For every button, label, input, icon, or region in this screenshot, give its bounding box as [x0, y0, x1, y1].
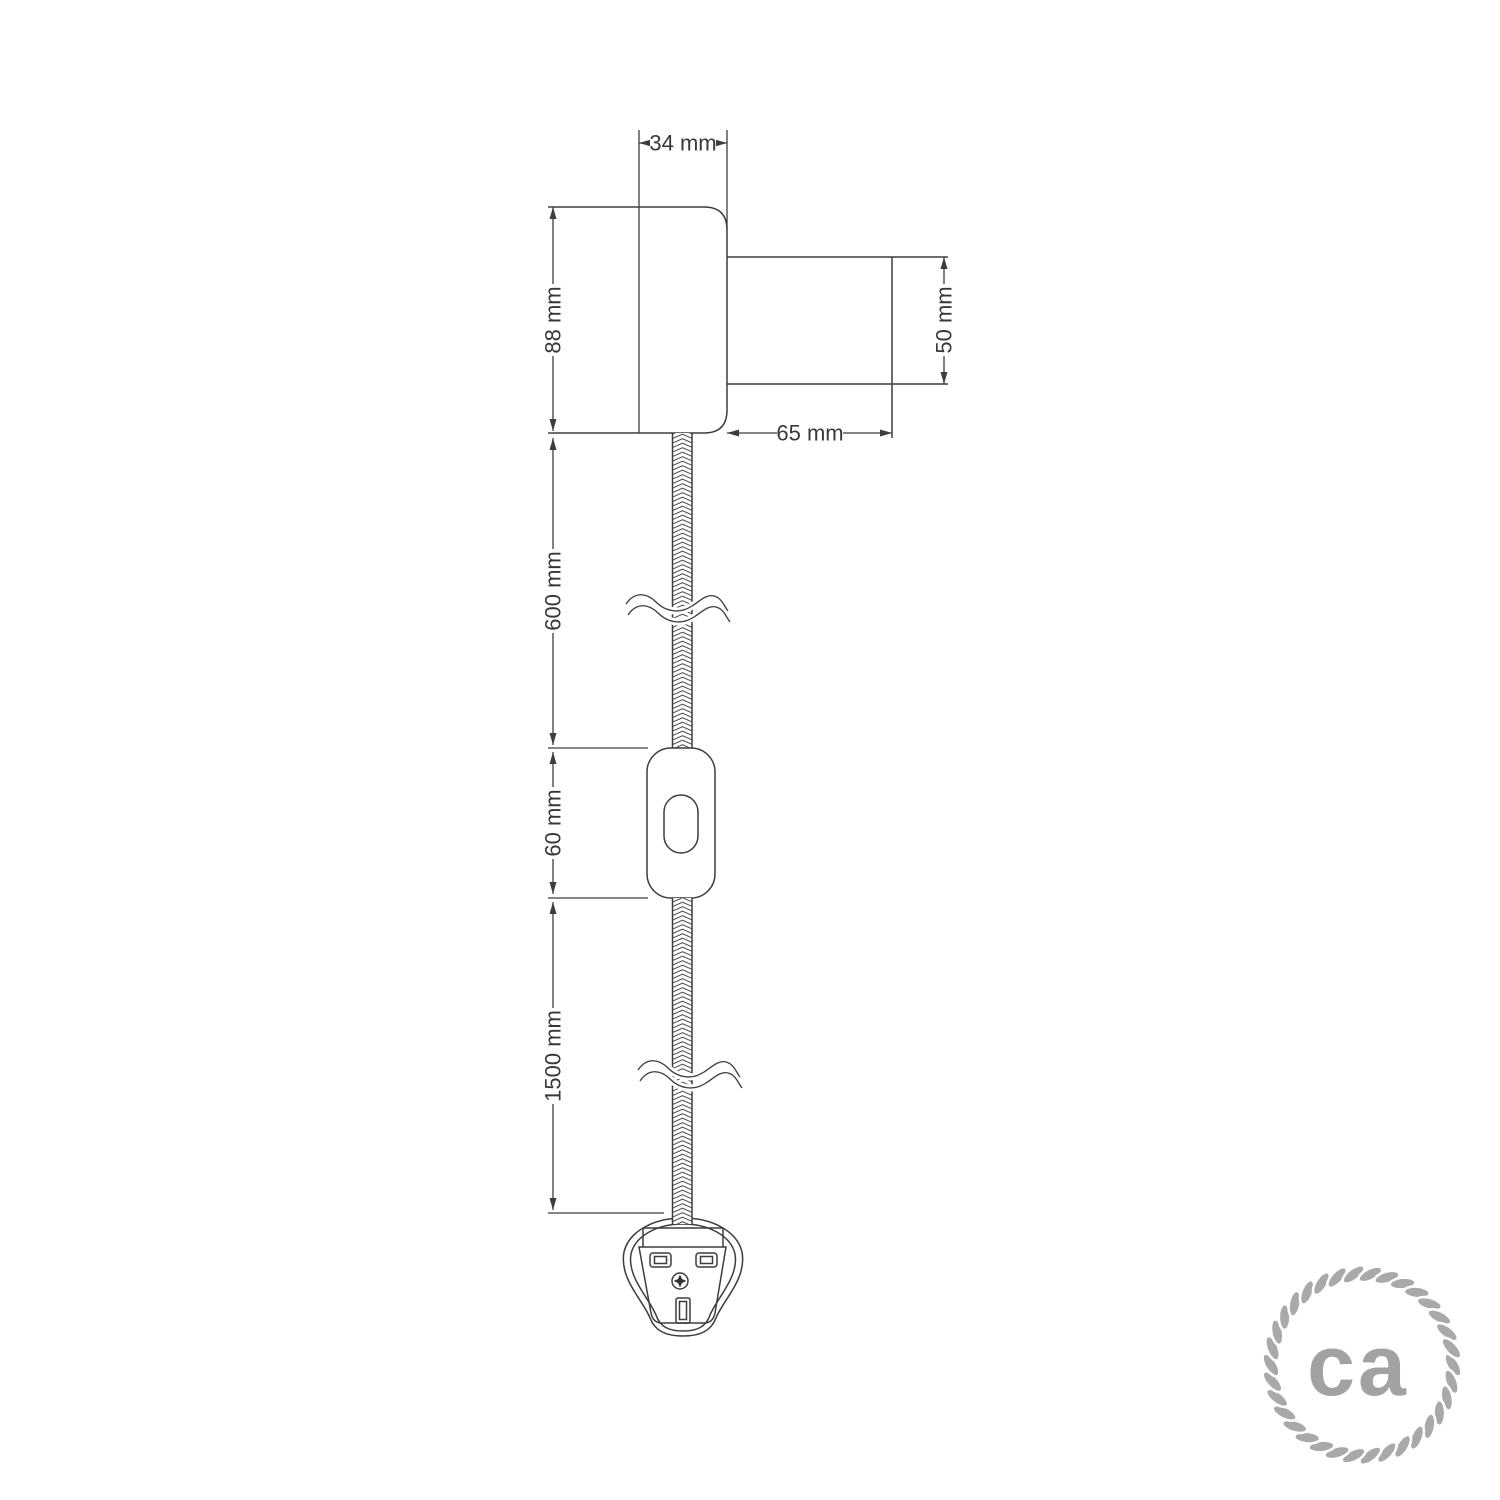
- dimension-label-50mm: 50 mm: [932, 286, 957, 353]
- switch-button: [664, 795, 698, 853]
- wall-mount-body: [548, 207, 727, 433]
- dimension-1500mm: 1500 mm: [541, 902, 665, 1213]
- dimension-88mm: 88 mm: [541, 207, 566, 431]
- diagram-canvas: 34 mm 88 mm 50 mm 65 mm 600 mm 60 mm 150…: [0, 0, 1500, 1500]
- dimension-34mm: 34 mm: [639, 130, 727, 433]
- plug-pin-slot-right: [696, 1253, 717, 1267]
- brand-logo-text: ca: [1307, 1318, 1409, 1414]
- uk-plug: [623, 1218, 742, 1336]
- dimension-label-1500mm: 1500 mm: [541, 1010, 566, 1102]
- dimension-label-34mm: 34 mm: [649, 131, 716, 156]
- dimension-label-60mm: 60 mm: [541, 789, 566, 856]
- lamp-dimension-drawing: 34 mm 88 mm 50 mm 65 mm 600 mm 60 mm 150…: [0, 0, 1500, 1500]
- lamp-holder: [727, 257, 948, 438]
- braided-cable-upper: [673, 433, 693, 748]
- inline-switch: [647, 748, 715, 898]
- braided-cable-lower: [673, 898, 693, 1224]
- dimension-50mm: 50 mm: [932, 257, 957, 384]
- dimension-60mm: 60 mm: [541, 748, 649, 898]
- dimension-label-65mm: 65 mm: [776, 421, 843, 446]
- plug-screw: [672, 1273, 688, 1289]
- dimension-label-600mm: 600 mm: [541, 551, 566, 630]
- dimension-65mm: 65 mm: [727, 421, 892, 446]
- dimension-600mm: 600 mm: [541, 438, 566, 745]
- dimension-label-88mm: 88 mm: [541, 286, 566, 353]
- plug-pin-slot-left: [650, 1253, 671, 1267]
- brand-logo: ca: [1259, 1262, 1465, 1468]
- plug-pin-slot-bottom: [676, 1298, 690, 1323]
